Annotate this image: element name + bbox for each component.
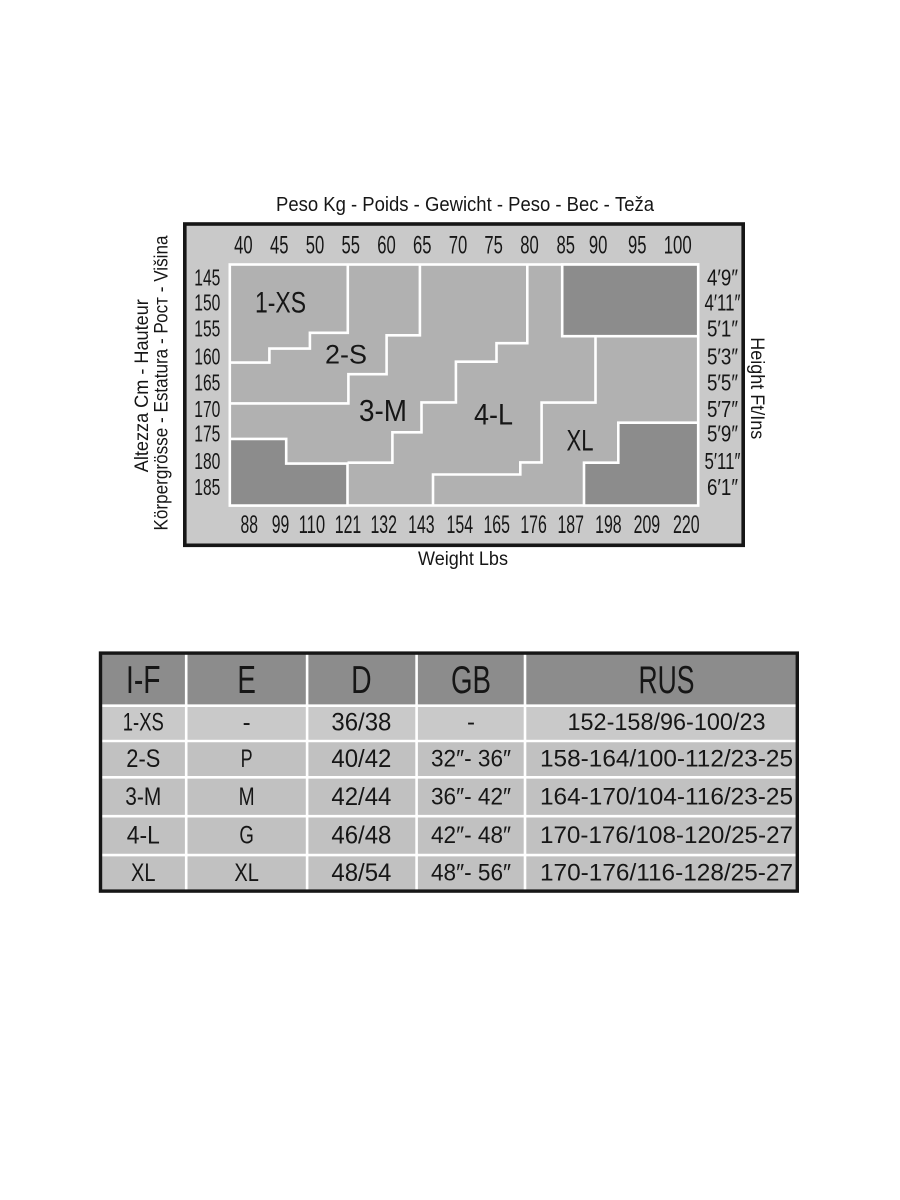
- svg-text:32″- 36″: 32″- 36″: [431, 746, 511, 773]
- svg-text:40/42: 40/42: [331, 745, 391, 773]
- svg-text:170-176/108-120/25-27: 170-176/108-120/25-27: [540, 822, 793, 849]
- svg-text:-: -: [467, 709, 475, 736]
- svg-text:XL: XL: [234, 859, 259, 887]
- svg-text:4′9″: 4′9″: [707, 265, 738, 291]
- svg-text:36″- 42″: 36″- 42″: [431, 783, 511, 810]
- svg-text:170-176/116-128/25-27: 170-176/116-128/25-27: [540, 860, 793, 887]
- svg-text:5′1″: 5′1″: [707, 316, 738, 342]
- svg-text:85: 85: [557, 231, 576, 259]
- svg-text:XL: XL: [131, 859, 156, 887]
- svg-text:48/54: 48/54: [331, 859, 391, 887]
- svg-text:143: 143: [408, 511, 435, 539]
- svg-text:P: P: [241, 745, 253, 773]
- svg-text:165: 165: [194, 370, 220, 396]
- svg-text:5′11″: 5′11″: [705, 448, 741, 474]
- svg-text:46/48: 46/48: [331, 822, 391, 850]
- svg-text:GB: GB: [451, 659, 491, 702]
- svg-text:Height Ft/Ins: Height Ft/Ins: [746, 337, 768, 439]
- svg-text:155: 155: [194, 316, 220, 342]
- svg-text:152-158/96-100/23: 152-158/96-100/23: [568, 709, 766, 736]
- svg-text:160: 160: [194, 344, 220, 370]
- svg-text:5′3″: 5′3″: [707, 344, 738, 370]
- svg-text:Altezza Cm - Hauteur: Altezza Cm - Hauteur: [132, 299, 153, 473]
- svg-text:4′11″: 4′11″: [705, 290, 741, 316]
- svg-text:3-M: 3-M: [125, 783, 161, 811]
- svg-text:100: 100: [664, 231, 692, 259]
- svg-text:150: 150: [194, 290, 220, 316]
- svg-text:45: 45: [270, 231, 289, 259]
- svg-text:95: 95: [628, 231, 647, 259]
- svg-text:M: M: [239, 783, 255, 811]
- svg-text:4-L: 4-L: [474, 399, 513, 432]
- svg-text:145: 145: [194, 265, 220, 291]
- svg-text:80: 80: [520, 231, 539, 259]
- svg-text:164-170/104-116/23-25: 164-170/104-116/23-25: [540, 783, 793, 810]
- svg-text:185: 185: [194, 474, 220, 500]
- svg-text:60: 60: [377, 231, 396, 259]
- svg-text:209: 209: [634, 511, 661, 539]
- svg-text:36/38: 36/38: [331, 709, 391, 737]
- svg-text:4-L: 4-L: [127, 822, 160, 850]
- svg-text:XL: XL: [567, 424, 594, 457]
- svg-text:40: 40: [234, 231, 253, 259]
- svg-text:180: 180: [194, 448, 220, 474]
- svg-text:5′5″: 5′5″: [707, 370, 738, 396]
- svg-text:50: 50: [306, 231, 325, 259]
- svg-text:55: 55: [341, 231, 360, 259]
- svg-text:70: 70: [449, 231, 468, 259]
- svg-text:3-M: 3-M: [359, 393, 407, 428]
- svg-text:110: 110: [299, 511, 326, 539]
- svg-text:6′1″: 6′1″: [707, 474, 738, 500]
- svg-text:99: 99: [272, 511, 290, 539]
- svg-text:88: 88: [240, 511, 258, 539]
- svg-text:D: D: [351, 659, 372, 702]
- svg-text:G: G: [239, 822, 254, 850]
- svg-text:42″- 48″: 42″- 48″: [431, 822, 511, 849]
- svg-text:5′7″: 5′7″: [707, 396, 738, 422]
- svg-text:198: 198: [595, 511, 622, 539]
- svg-text:Weight Lbs: Weight Lbs: [418, 549, 508, 570]
- svg-text:158-164/100-112/23-25: 158-164/100-112/23-25: [540, 746, 793, 773]
- svg-text:65: 65: [413, 231, 432, 259]
- svg-text:75: 75: [484, 231, 503, 259]
- svg-text:132: 132: [370, 511, 397, 539]
- svg-text:187: 187: [557, 511, 584, 539]
- svg-text:Körpergrösse - Estatura - Рост: Körpergrösse - Estatura - Рост - Višina: [151, 235, 172, 530]
- svg-text:I-F: I-F: [126, 659, 161, 702]
- svg-text:170: 170: [194, 396, 220, 422]
- svg-text:-: -: [243, 709, 251, 737]
- svg-text:2-S: 2-S: [325, 340, 367, 370]
- svg-text:Peso Kg - Poids - Gewicht - Pe: Peso Kg - Poids - Gewicht - Peso - Вес -…: [276, 194, 655, 216]
- svg-text:121: 121: [335, 511, 362, 539]
- svg-text:1-XS: 1-XS: [123, 709, 164, 737]
- svg-text:220: 220: [673, 511, 700, 539]
- svg-text:165: 165: [483, 511, 510, 539]
- svg-text:176: 176: [520, 511, 547, 539]
- svg-text:175: 175: [194, 421, 220, 447]
- svg-text:E: E: [237, 659, 256, 702]
- svg-text:2-S: 2-S: [126, 745, 160, 773]
- svg-text:RUS: RUS: [639, 659, 695, 702]
- svg-text:42/44: 42/44: [331, 783, 391, 811]
- svg-text:5′9″: 5′9″: [707, 421, 738, 447]
- svg-text:154: 154: [447, 511, 474, 539]
- svg-text:90: 90: [589, 231, 608, 259]
- svg-text:1-XS: 1-XS: [255, 287, 306, 320]
- svg-text:48″- 56″: 48″- 56″: [431, 860, 511, 887]
